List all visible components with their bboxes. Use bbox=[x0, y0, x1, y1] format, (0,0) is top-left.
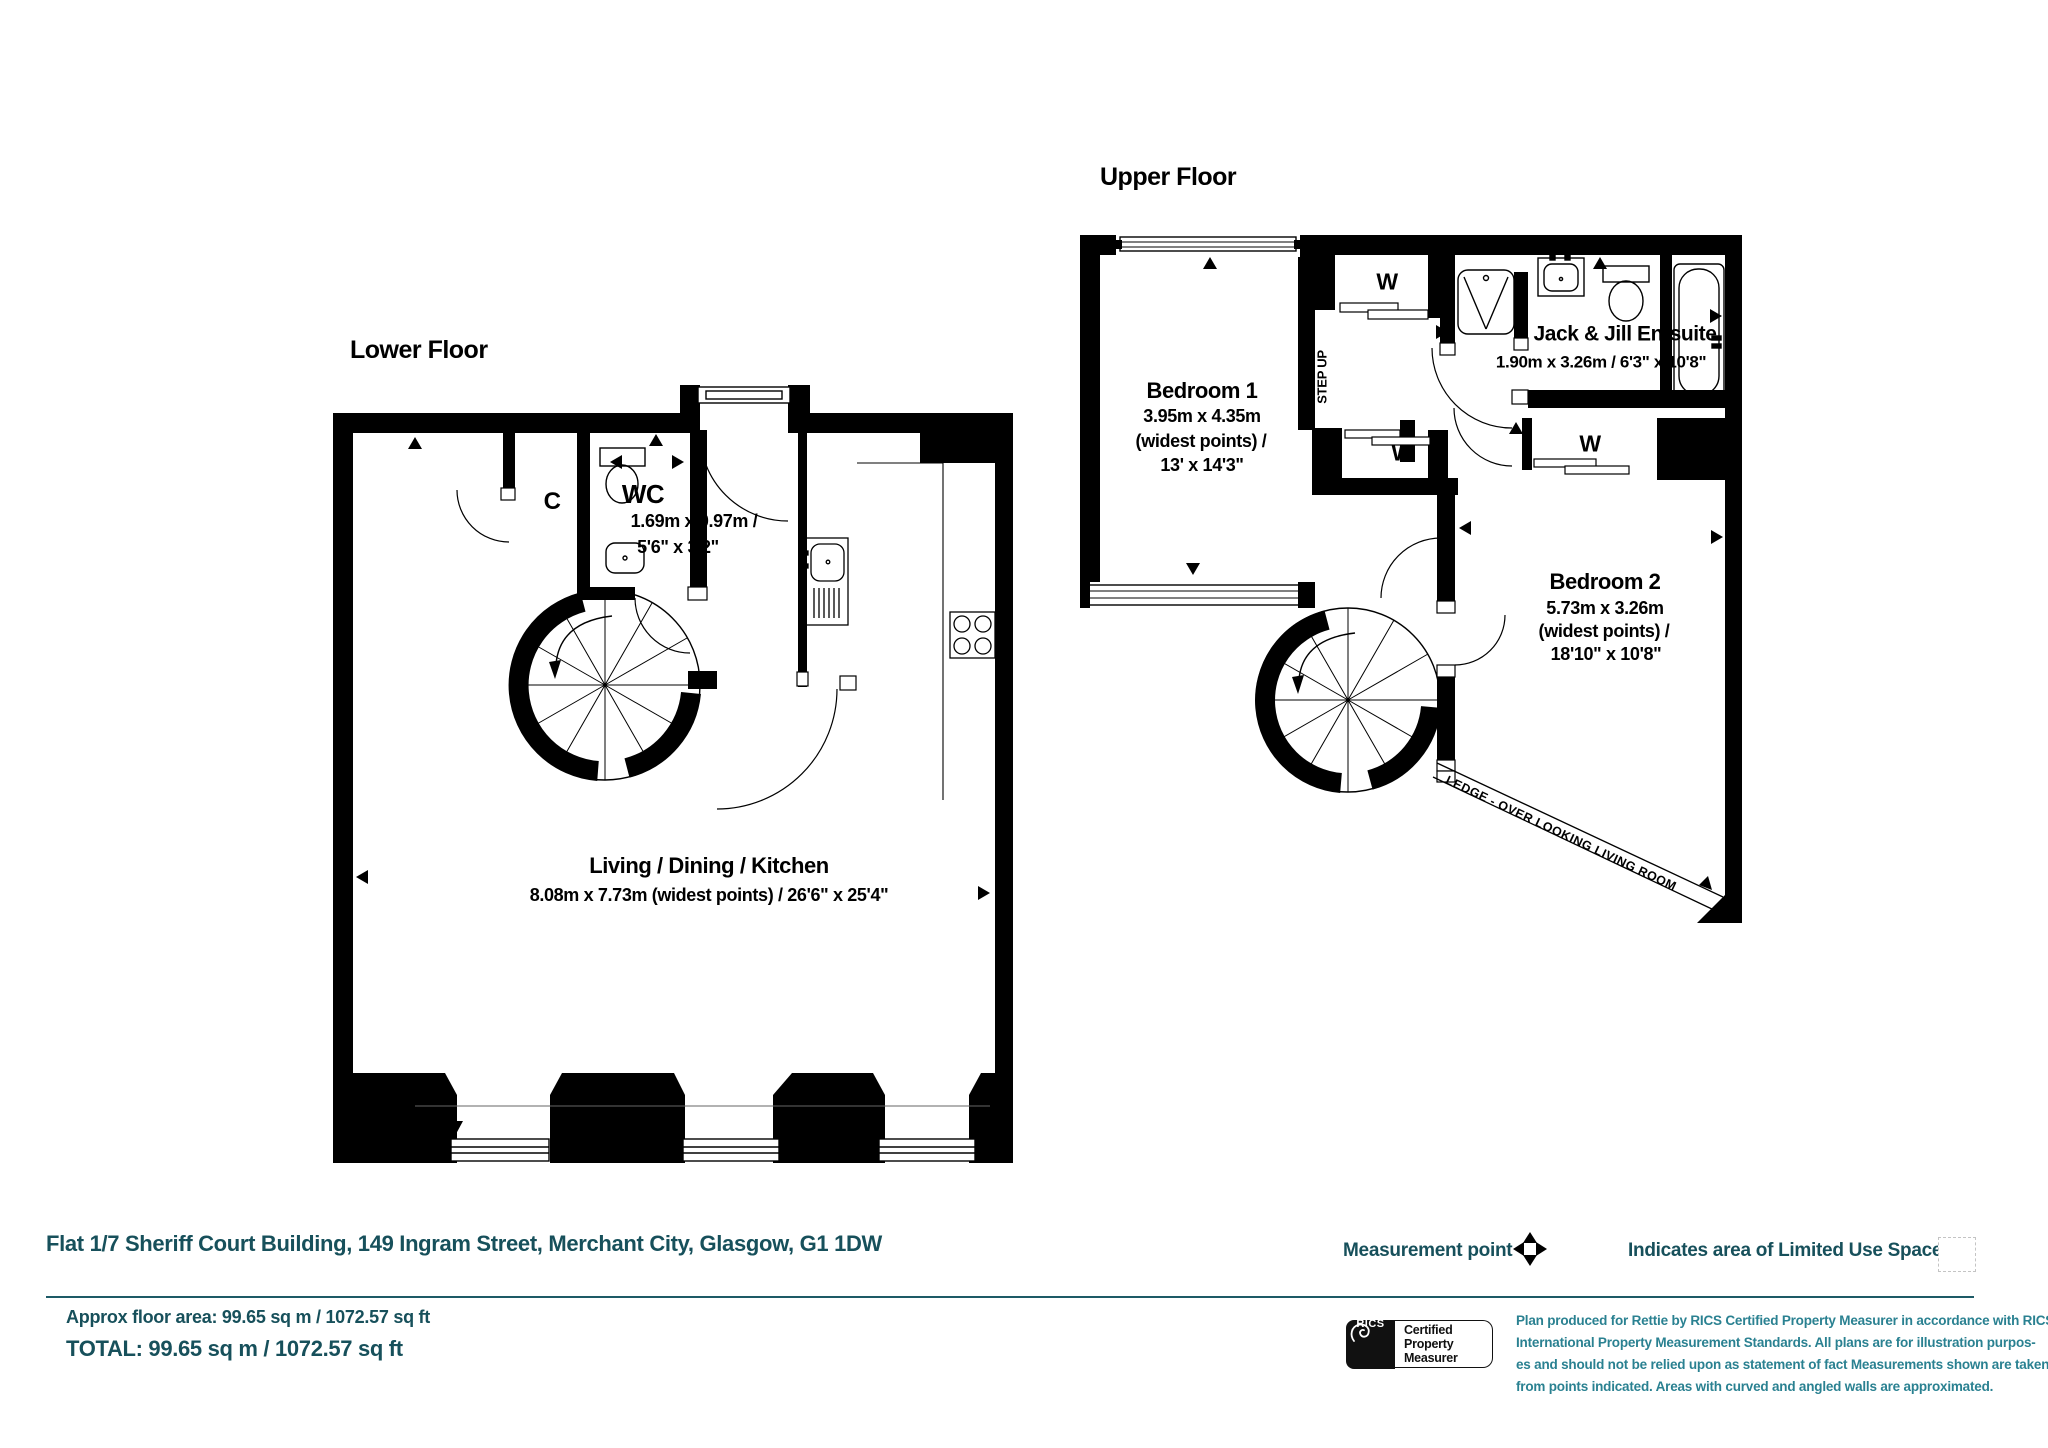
disclaimer-line-3: es and should not be relied upon as stat… bbox=[1516, 1354, 1986, 1376]
bedroom2-dims-metric: 5.73m x 3.26m bbox=[1546, 599, 1663, 617]
cupboard-label: C bbox=[544, 490, 561, 514]
rics-certification-label: Certified Property Measurer bbox=[1395, 1323, 1474, 1365]
bedroom2-dims-note: (widest points) / bbox=[1539, 622, 1670, 640]
disclaimer-line-2: International Property Measurement Stand… bbox=[1516, 1332, 1986, 1354]
approx-floor-area: Approx floor area: 99.65 sq m / 1072.57 … bbox=[66, 1308, 430, 1326]
rics-certification-badge: Certified Property Measurer bbox=[1395, 1320, 1493, 1368]
disclaimer-line-4: from points indicated. Areas with curved… bbox=[1516, 1376, 1986, 1398]
bedroom1-dims-imperial: 13' x 14'3" bbox=[1160, 456, 1243, 474]
stair-direction-arrow bbox=[1292, 675, 1304, 694]
lower-walls bbox=[333, 385, 1013, 1163]
bedroom1-dims-metric: 3.95m x 4.35m bbox=[1143, 407, 1260, 425]
upper-floor-title: Upper Floor bbox=[1100, 165, 1236, 190]
wc-dims-imperial: 5'6" x 3'2" bbox=[637, 538, 719, 556]
living-room-label: Living / Dining / Kitchen bbox=[589, 855, 829, 877]
shower-icon bbox=[1458, 270, 1514, 334]
wc-cistern-icon bbox=[600, 448, 645, 466]
wardrobe3-label: W bbox=[1579, 433, 1600, 456]
disclaimer-line-1: Plan produced for Rettie by RICS Certifi… bbox=[1516, 1310, 1986, 1332]
legend-limited-use-label: Indicates area of Limited Use Space bbox=[1628, 1241, 1942, 1260]
wc-label: WC bbox=[622, 481, 664, 507]
footer-divider bbox=[46, 1296, 1974, 1298]
ensuite-label: Jack & Jill En-suite bbox=[1533, 324, 1716, 345]
stair-landing-door-arc bbox=[1381, 538, 1441, 598]
legend-measurement-point-label: Measurement point bbox=[1343, 1241, 1512, 1260]
living-room-dims: 8.08m x 7.73m (widest points) / 26'6" x … bbox=[530, 886, 889, 904]
lower-floor-title: Lower Floor bbox=[350, 338, 488, 363]
rics-logo: RICS bbox=[1346, 1320, 1395, 1369]
kitchen-fixtures bbox=[799, 463, 995, 800]
stair-direction-arrow bbox=[549, 660, 561, 679]
lower-floor-plan bbox=[333, 385, 1013, 1163]
entry-door bbox=[698, 387, 790, 521]
floorplan-page: Lower Floor C WC 1.69m x 0.97m / 5'6" x … bbox=[0, 0, 2048, 1448]
toilet-icon bbox=[1603, 266, 1649, 321]
total-floor-area: TOTAL: 99.65 sq m / 1072.57 sq ft bbox=[66, 1338, 403, 1360]
spiral-staircase-upper bbox=[1256, 608, 1440, 792]
kitchen-sink-icon bbox=[799, 538, 848, 625]
measurement-point-icon bbox=[1513, 1232, 1547, 1266]
limited-use-space-swatch bbox=[1938, 1237, 1976, 1272]
bedroom1-label: Bedroom 1 bbox=[1147, 380, 1258, 402]
sink-icon bbox=[1538, 250, 1584, 296]
bedroom2-label: Bedroom 2 bbox=[1550, 571, 1661, 593]
property-address: Flat 1/7 Sheriff Court Building, 149 Ing… bbox=[46, 1233, 882, 1255]
spiral-staircase-lower bbox=[510, 590, 700, 780]
bedroom2-dims-imperial: 18'10" x 10'8" bbox=[1551, 645, 1662, 663]
bedroom2-door-arc bbox=[1455, 615, 1505, 665]
bedroom1-dims-note: (widest points) / bbox=[1136, 432, 1267, 450]
hob-icon bbox=[950, 612, 995, 658]
rics-lion-icon bbox=[1346, 1320, 1376, 1346]
ensuite-bedroom2-door-arc bbox=[1454, 408, 1512, 466]
kitchen-counter bbox=[857, 463, 943, 800]
wardrobe2-label: W bbox=[1391, 442, 1412, 465]
lower-bay-windows bbox=[415, 1106, 990, 1161]
step-up-label: STEP UP bbox=[1316, 350, 1329, 404]
ensuite-dims: 1.90m x 3.26m / 6'3" x 10'8" bbox=[1496, 354, 1706, 371]
wc-dims-metric: 1.69m x 0.97m / bbox=[631, 512, 758, 530]
wardrobe1-label: W bbox=[1376, 271, 1397, 294]
